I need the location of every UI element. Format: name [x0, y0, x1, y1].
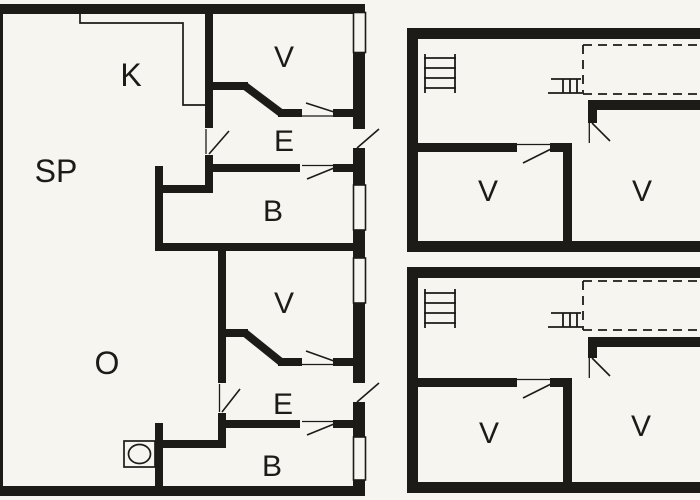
wall-segment: [407, 267, 418, 493]
annex-upper: V V: [407, 28, 700, 252]
annex-lower: V V: [407, 267, 700, 493]
main-interior-walls-top-unit: [155, 14, 365, 251]
wall-segment: [205, 14, 213, 128]
wall-segment: [407, 482, 700, 493]
kitchen-counter-line: [80, 14, 205, 105]
wall-segment: [278, 358, 302, 366]
main-door-swings: [209, 103, 334, 435]
wall-segment: [418, 378, 517, 387]
door-swing: [307, 168, 334, 179]
main-interior-walls-bottom-unit: [155, 251, 353, 486]
wall-segment: [218, 251, 226, 383]
wall-segment: [0, 4, 3, 496]
wall-segment: [588, 337, 700, 347]
room-label-e-top: E: [274, 125, 294, 158]
loft-ladder-icon: [548, 79, 582, 93]
wall-segment-diagonal: [245, 86, 281, 113]
room-label-v-top: V: [274, 41, 294, 74]
main-room-labels: SP K V E B O V E B: [35, 41, 294, 483]
wall-segment: [407, 241, 700, 252]
window: [354, 258, 366, 303]
wall-segment: [0, 4, 365, 14]
annex-upper-walls: [407, 28, 700, 252]
room-label-v-bottom: V: [274, 287, 294, 320]
stove-plate: [129, 445, 151, 464]
door-swing: [306, 351, 334, 361]
window: [354, 185, 366, 230]
loft-dashed-outline: [583, 281, 700, 330]
room-label-v-left: V: [478, 175, 498, 208]
wall-segment: [155, 166, 163, 250]
door-swing: [592, 358, 610, 376]
room-label-e-bottom: E: [273, 388, 293, 421]
floorplan-page: SP K V E B O V E B: [0, 0, 700, 500]
wall-segment: [333, 164, 353, 172]
door-swing: [307, 424, 334, 435]
stairs-icon: [424, 54, 456, 93]
wall-segment: [333, 358, 353, 366]
door-swing: [222, 389, 240, 412]
room-label-k: K: [120, 57, 141, 93]
loft-dashed-outline: [583, 45, 700, 94]
window: [354, 437, 366, 480]
wall-segment: [588, 100, 700, 110]
wall-segment: [407, 267, 700, 278]
wall-segment: [407, 28, 418, 252]
door-swing: [306, 103, 334, 112]
wall-segment: [155, 423, 163, 486]
wall-segment: [588, 110, 597, 123]
door-swing: [592, 123, 610, 141]
floorplan-drawing: SP K V E B O V E B: [0, 0, 700, 500]
door-swing: [523, 149, 551, 163]
room-label-v-left: V: [479, 417, 499, 450]
wall-segment: [155, 243, 365, 251]
wall-segment: [226, 420, 300, 428]
stairs-icon: [424, 289, 456, 328]
window: [354, 13, 366, 53]
door-swing: [209, 131, 229, 154]
wall-segment: [333, 109, 353, 117]
main-building: SP K V E B O V E B: [0, 4, 379, 496]
room-label-v-right: V: [632, 175, 652, 208]
wall-segment: [163, 440, 226, 448]
room-label-sp: SP: [35, 153, 78, 189]
wall-segment: [213, 82, 248, 90]
wall-segment: [278, 109, 302, 117]
room-label-o: O: [95, 345, 120, 381]
wall-segment-diagonal: [245, 333, 281, 362]
room-label-b-top: B: [263, 195, 283, 228]
annex-lower-walls: [407, 267, 700, 493]
door-swing: [523, 384, 551, 398]
wall-segment: [333, 420, 353, 428]
loft-ladder-icon: [548, 313, 582, 327]
wall-segment: [407, 28, 700, 39]
wall-segment: [563, 143, 572, 241]
room-label-b-bottom: B: [262, 450, 282, 483]
wall-segment: [205, 164, 300, 172]
wall-segment: [563, 378, 572, 482]
wall-segment: [155, 185, 213, 193]
wall-segment: [0, 486, 365, 496]
wall-segment: [588, 347, 597, 358]
room-label-v-right: V: [631, 410, 651, 443]
stove-icon: [124, 441, 155, 467]
wall-segment: [418, 143, 517, 152]
